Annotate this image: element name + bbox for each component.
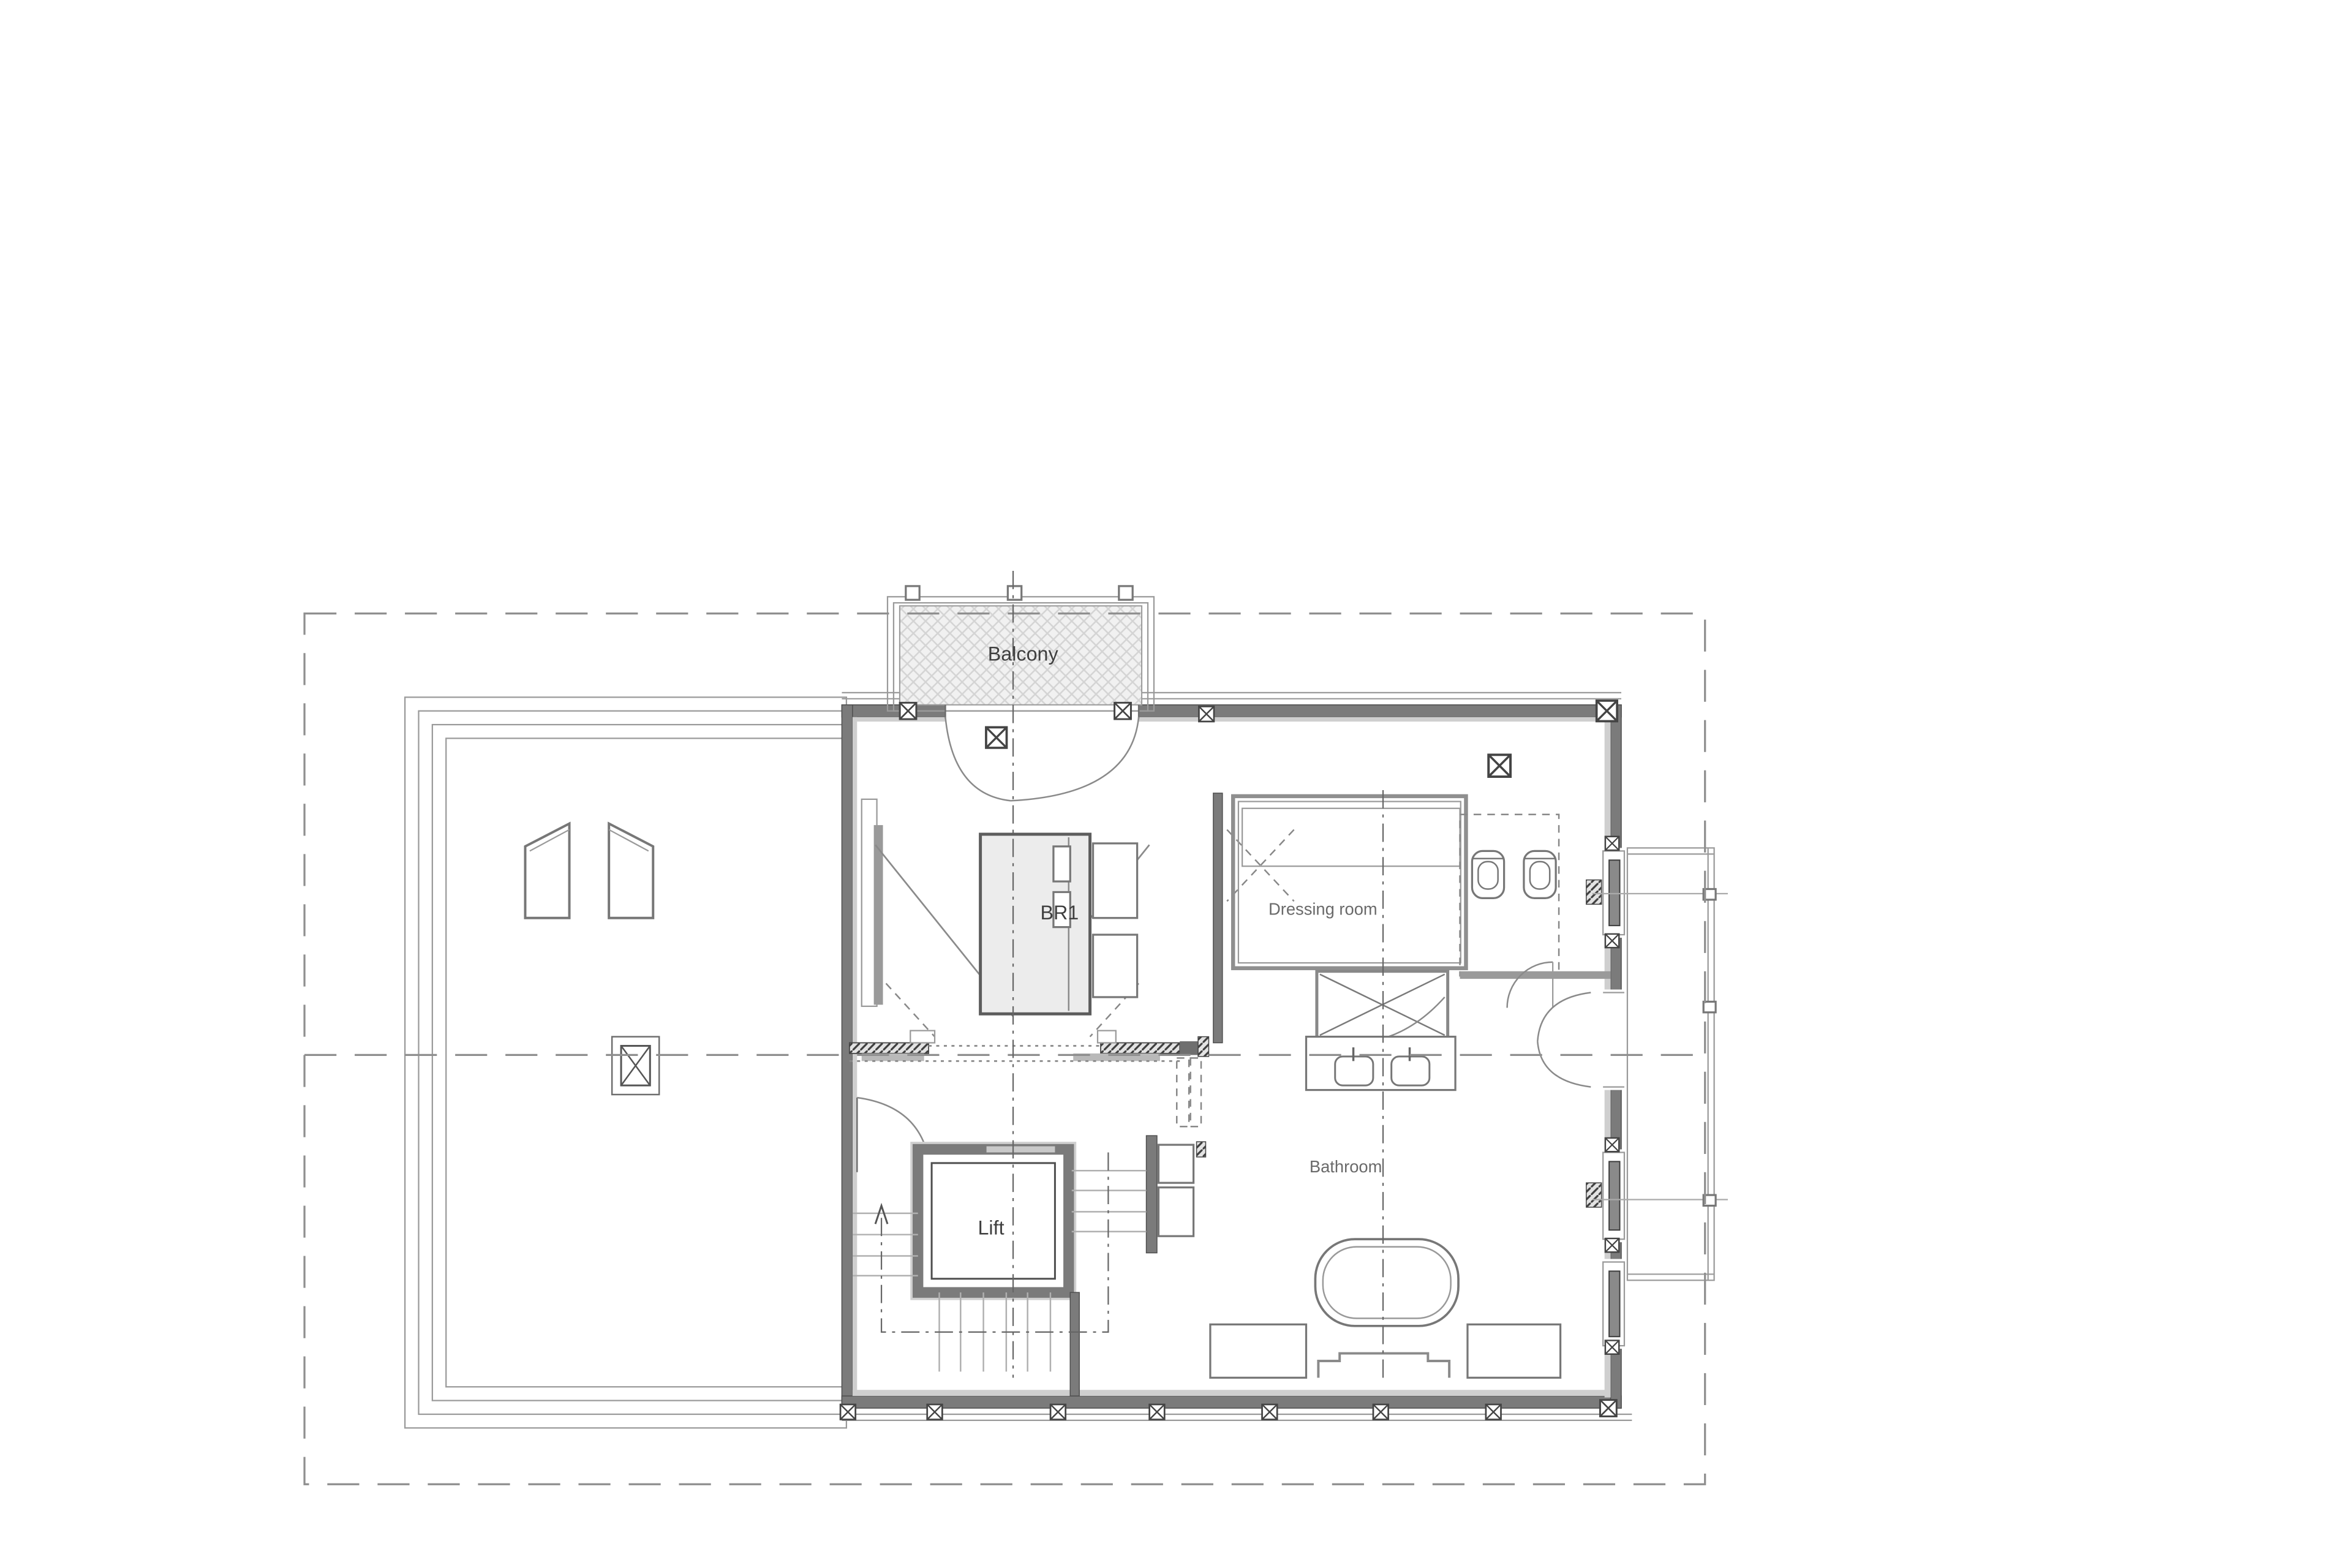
skylight-icon — [525, 824, 569, 918]
shower-icon — [1317, 971, 1448, 1038]
post-marker-icon — [1150, 1404, 1165, 1420]
toilet-icon — [1472, 851, 1504, 898]
br1-east-wall — [1213, 793, 1223, 1043]
post-marker-icon — [1199, 706, 1214, 722]
post-marker-icon — [1486, 1404, 1501, 1420]
wall-hatch-post — [1586, 1183, 1602, 1207]
roof-outline-1 — [405, 697, 846, 1428]
balcony-post — [1008, 586, 1021, 600]
room-label-balcony: Balcony — [988, 643, 1059, 665]
post-marker-icon — [1605, 1340, 1619, 1354]
terrace-outline — [1627, 848, 1714, 1280]
bidet-icon — [1524, 851, 1556, 898]
stair-side-wall — [1070, 1292, 1079, 1396]
room-label-bathroom: Bathroom — [1310, 1157, 1382, 1176]
bed-pillow — [1053, 846, 1070, 881]
bedside-cabinet — [1093, 935, 1137, 997]
floor-plan-canvas: Balcony BR1 Dressing room Bathroom Lift — [0, 0, 2352, 1568]
bed — [981, 834, 1090, 1014]
wall-lining — [853, 1390, 1617, 1396]
post-marker-icon — [1050, 1404, 1066, 1420]
room-label-br1: BR1 — [1040, 902, 1079, 924]
roof-outline-3 — [432, 725, 846, 1401]
west-wall — [842, 705, 852, 1408]
post-marker-icon — [1115, 703, 1131, 719]
post-marker-icon — [900, 703, 916, 719]
wall-lining — [853, 717, 857, 1398]
post-marker-icon — [1262, 1404, 1278, 1420]
post-marker-icon — [1605, 1238, 1619, 1252]
room-label-lift: Lift — [978, 1217, 1004, 1239]
post-marker-icon — [1605, 837, 1619, 850]
niche-shelf — [1158, 1188, 1193, 1237]
balcony-post — [906, 586, 919, 600]
bath-bench — [1468, 1324, 1561, 1378]
window-glazing — [1609, 1271, 1619, 1336]
bath-bench — [1210, 1324, 1306, 1378]
post-marker-icon — [1597, 701, 1618, 722]
balcony-post — [1119, 586, 1133, 600]
post-marker-icon — [1605, 934, 1619, 948]
vanity — [1306, 1037, 1456, 1090]
bathtub-icon — [1315, 1239, 1458, 1326]
wc-south-wall — [1460, 971, 1611, 979]
south-wall — [842, 1396, 1621, 1408]
wall-stub — [1180, 1041, 1198, 1055]
post-marker-icon — [1488, 755, 1510, 777]
glazed-wall-fixed-panel — [1101, 1043, 1180, 1053]
window-glazing — [1609, 860, 1619, 925]
roof-wing — [405, 697, 846, 1428]
room-label-dressing: Dressing room — [1268, 900, 1378, 919]
wall-hatch-post — [1586, 880, 1602, 905]
post-marker-icon — [1600, 1400, 1616, 1417]
window — [1600, 1259, 1627, 1354]
post-marker-icon — [1605, 1138, 1619, 1151]
wall-hatch-post — [1198, 1037, 1208, 1057]
chimney-icon — [612, 1037, 659, 1095]
wall-hatch-post — [1197, 1142, 1206, 1157]
window-glazing — [1609, 1161, 1619, 1230]
post-marker-icon — [1373, 1404, 1389, 1420]
roof-outline-4 — [446, 738, 846, 1387]
post-marker-icon — [927, 1404, 943, 1420]
skylight-icon — [609, 824, 653, 918]
niche-shelf — [1158, 1145, 1193, 1183]
floor-plan-page: Balcony BR1 Dressing room Bathroom Lift — [0, 0, 2352, 1568]
glazed-wall-fixed-panel — [850, 1043, 929, 1053]
post-marker-icon — [986, 727, 1007, 748]
post-marker-icon — [840, 1404, 856, 1420]
main-block — [840, 693, 1632, 1420]
bedside-cabinet — [1093, 843, 1137, 918]
railing-post — [1703, 1001, 1716, 1012]
wall-lining — [842, 717, 945, 722]
